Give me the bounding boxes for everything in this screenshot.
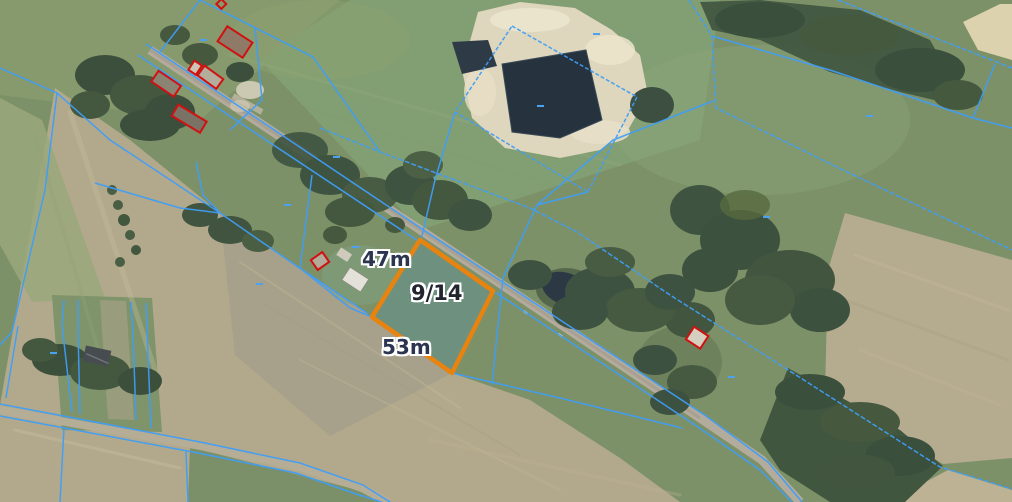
aerial-map-viewport[interactable]: 47m 9/14 53m xyxy=(0,0,1012,502)
aerial-map-canvas xyxy=(0,0,1012,502)
dimension-label-bottom: 53m xyxy=(382,337,431,357)
dimension-label-top: 47m xyxy=(362,249,411,269)
parcel-number-label: 9/14 xyxy=(411,283,463,304)
excavation-pond xyxy=(502,50,602,138)
